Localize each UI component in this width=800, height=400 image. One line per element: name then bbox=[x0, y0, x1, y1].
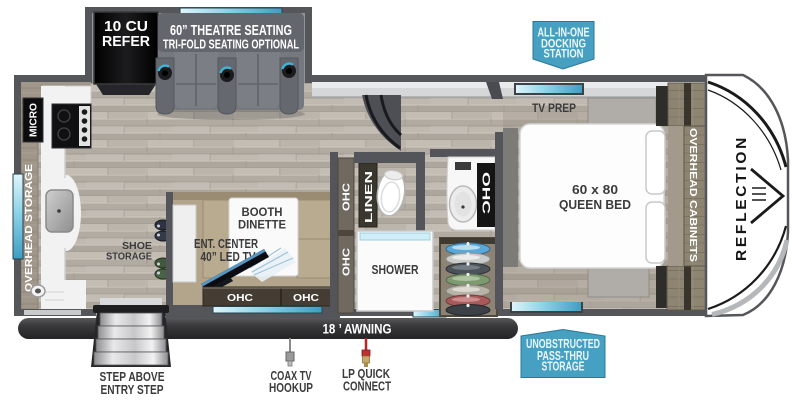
svg-text:60” THEATRE SEATING: 60” THEATRE SEATING bbox=[170, 22, 292, 39]
svg-text:SHOWER: SHOWER bbox=[372, 263, 419, 277]
svg-text:OVERHEAD CABINETS: OVERHEAD CABINETS bbox=[687, 128, 698, 262]
svg-text:OHC: OHC bbox=[341, 248, 353, 276]
svg-text:ENTRY STEP: ENTRY STEP bbox=[101, 382, 164, 397]
svg-text:18 ’ AWNING: 18 ’ AWNING bbox=[323, 321, 392, 337]
svg-text:STORAGE: STORAGE bbox=[542, 360, 585, 374]
svg-text:STORAGE: STORAGE bbox=[106, 251, 152, 263]
svg-text:REFLECTION: REFLECTION bbox=[734, 135, 750, 261]
svg-text:TV PREP: TV PREP bbox=[532, 101, 576, 115]
svg-text:HOOKUP: HOOKUP bbox=[269, 381, 313, 395]
svg-text:OHC: OHC bbox=[341, 183, 353, 211]
svg-text:BOOTH: BOOTH bbox=[242, 207, 283, 219]
svg-text:MICRO: MICRO bbox=[29, 103, 40, 137]
svg-text:OHC: OHC bbox=[293, 292, 319, 304]
svg-text:LINEN: LINEN bbox=[363, 171, 375, 223]
svg-text:CONNECT: CONNECT bbox=[343, 380, 391, 394]
svg-text:ENT. CENTER: ENT. CENTER bbox=[194, 237, 258, 251]
svg-text:QUEEN BED: QUEEN BED bbox=[559, 198, 631, 212]
svg-text:STATION: STATION bbox=[544, 47, 584, 61]
svg-text:60 x 80: 60 x 80 bbox=[572, 183, 618, 197]
svg-text:OHC: OHC bbox=[480, 172, 492, 214]
svg-text:OVERHEAD STORAGE: OVERHEAD STORAGE bbox=[23, 164, 35, 292]
svg-text:OHC: OHC bbox=[227, 292, 253, 304]
svg-text:TRI-FOLD SEATING OPTIONAL: TRI-FOLD SEATING OPTIONAL bbox=[163, 38, 299, 52]
svg-text:REFER: REFER bbox=[102, 33, 150, 50]
svg-text:DINETTE: DINETTE bbox=[238, 220, 286, 232]
